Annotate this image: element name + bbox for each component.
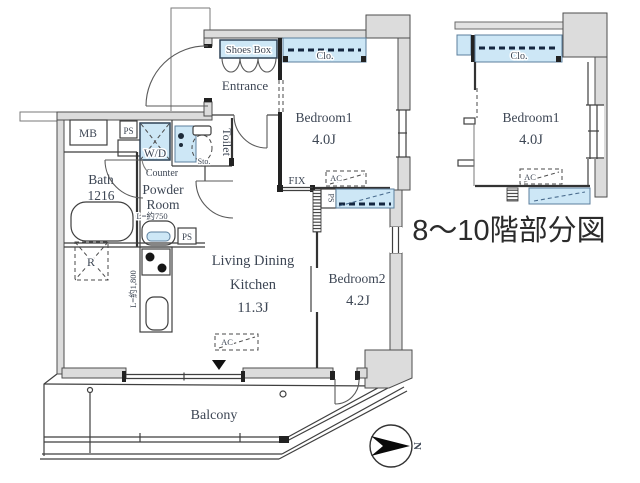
entry-marker [212,360,226,370]
bedroom1-ac-label: AC [330,173,342,183]
partial-bedroom1-size: 4.0J [519,132,543,148]
toilet-label: Toilet [220,128,234,156]
powder-door-arc [196,181,233,218]
ps1-label: PS [123,126,133,136]
bedroom1-left-wall [278,38,282,80]
ldk-label2: Kitchen [230,277,277,293]
bedroom1-label: Bedroom1 [296,110,353,125]
partial-left-closet [457,35,471,55]
bathtub [71,202,133,241]
partial-lower-closet [529,188,590,204]
room-toilet: Sto. Toilet [172,118,234,166]
powder-label1: Powder [142,182,184,197]
kitchen-sink [146,297,168,330]
bath-size: 1216 [88,188,115,203]
fix-label: FIX [289,176,306,187]
ps2-label: PS [182,232,192,242]
railing-joint [279,436,289,443]
building-outline [20,8,210,121]
bedroom2-label: Bedroom2 [329,271,386,286]
ps3-label: PS [327,194,336,203]
partial-ac-label: AC [524,172,536,182]
wd-label: W/D [144,148,166,160]
fridge-label: R [87,255,95,269]
kitchen-length: L=約1,800 [128,270,138,308]
toilet-tank [193,126,211,135]
floorplan-image: Balcony Shoes Box [0,0,640,483]
compass: N [370,425,423,467]
sto-label: Sto. [198,157,211,166]
partial-closet-label: Clo. [511,51,528,62]
room-bedroom1: Clo. Bedroom1 4.0J AC FIX [277,38,390,192]
mb-label: MB [79,128,97,140]
hatched-wall [313,190,321,232]
floorplan-svg: Balcony Shoes Box [0,0,640,483]
powder-label2: Room [146,197,180,212]
counter-length: L=約750 [136,211,167,221]
balcony-drain [280,391,286,397]
utility-strip: MB PS W/D [70,120,170,160]
stove [142,249,170,275]
partial-window [586,105,604,159]
balcony-label: Balcony [191,408,238,423]
balcony: Balcony [40,374,407,459]
entrance-door-arc [146,46,208,106]
kitchen-counter [140,247,172,332]
partial-plan: Clo. Bedroom1 4.0J AC 8〜10階部分図 [412,13,607,247]
basin-bowl [147,232,170,241]
shoes-box-label: Shoes Box [226,45,272,56]
balcony-post [88,388,93,393]
partial-bedroom1-label: Bedroom1 [503,110,560,125]
ldk-label1: Living Dining [212,253,295,269]
room-powder: Counter Powder Room L=約750 PS [136,160,233,245]
room-ldk: L=約1,800 R Living Dining Kitchen 11.3J A… [75,242,294,382]
partial-caption: 8〜10階部分図 [412,214,605,247]
bedroom2-window [390,227,402,253]
bedroom2-size: 4.2J [346,293,370,309]
ldk-size: 11.3J [237,300,269,316]
counter-label: Counter [146,168,179,179]
ldk-ac-label: AC [221,337,233,347]
bedroom1-closet-label: Clo. [317,51,334,62]
north-label: N [411,442,423,450]
entrance-label: Entrance [222,78,268,93]
bedroom1-window [396,110,410,157]
bedroom1-size: 4.0J [312,132,336,148]
hall-door-arc [234,115,267,148]
